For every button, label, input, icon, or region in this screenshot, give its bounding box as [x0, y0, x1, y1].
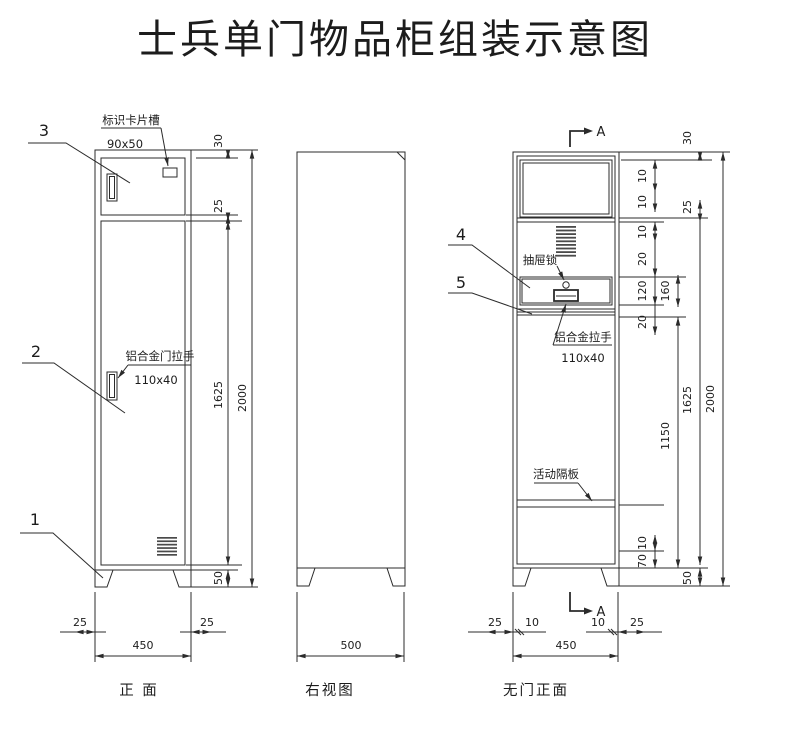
dim-label: 2000	[236, 384, 249, 412]
dim-label: 10	[636, 536, 649, 550]
dim-label: 10	[636, 169, 649, 183]
view-side: 500 右视图	[297, 152, 405, 699]
front-left-foot	[95, 570, 113, 587]
part-number-5: 5	[456, 273, 466, 292]
dim-label: 20	[636, 315, 649, 329]
page-title: 士兵单门物品柜组装示意图	[137, 17, 653, 63]
dim-label: 30	[212, 134, 225, 148]
dim-label: 25	[488, 616, 502, 629]
leader-arrow	[578, 483, 592, 501]
dim-label: 2000	[704, 385, 717, 413]
nodoor-right-foot	[601, 568, 619, 586]
dim-label: 10	[636, 195, 649, 209]
drawer-handle-label: 铝合金拉手	[554, 330, 612, 344]
view-label-side: 右视图	[305, 682, 355, 699]
front-right-dimensions: 30 25 1625 50 2000	[186, 134, 258, 587]
dim-label: 10	[636, 225, 649, 239]
dim-label: 10	[525, 616, 539, 629]
section-letter: A	[597, 125, 606, 140]
dim-label: 120	[636, 281, 649, 302]
drawer-handle-size: 110x40	[561, 351, 604, 365]
dim-label: 20	[636, 252, 649, 266]
dim-label: 450	[133, 639, 154, 652]
drawing-sheet: 士兵单门物品柜组装示意图 3 标识卡	[0, 0, 790, 736]
callout-part-3: 3	[28, 121, 130, 183]
front-top-door	[101, 158, 185, 215]
view-label-front: 正 面	[119, 683, 159, 699]
dim-label: 25	[681, 200, 694, 214]
view-nodoor: A A 4 5 抽屉锁 铝合金拉手 110x40 活动隔板	[448, 125, 730, 699]
nodoor-top-opening	[520, 160, 612, 217]
callout-drawer-lock: 抽屉锁	[523, 253, 564, 280]
callout-shelf: 活动隔板	[533, 467, 592, 501]
side-cabinet-outline	[297, 152, 405, 568]
side-bottom-dimensions: 500	[297, 592, 404, 662]
dim-label: 30	[681, 131, 694, 145]
view-label-nodoor: 无门正面	[503, 682, 569, 699]
callout-part-1: 1	[20, 510, 103, 578]
front-top-door-handle	[107, 174, 117, 201]
front-right-foot	[173, 570, 191, 587]
part-number-4: 4	[456, 225, 466, 244]
dim-label: 10	[591, 616, 605, 629]
nodoor-bottom-dimensions: 25 10 10 25 450	[468, 592, 662, 662]
dim-label: 25	[200, 616, 214, 629]
dim-label: 25	[73, 616, 87, 629]
section-arrow-icon	[584, 608, 593, 615]
part-number-2: 2	[31, 342, 41, 361]
front-main-door	[101, 221, 185, 565]
dim-label: 50	[212, 571, 225, 585]
part-number-3: 3	[39, 121, 49, 140]
drawer-handle	[554, 290, 578, 301]
section-mark-top: A	[570, 125, 606, 147]
door-handle-size: 110x40	[134, 373, 177, 387]
front-bottom-dimensions: 25 25 450	[60, 592, 226, 662]
callout-door-handle: 铝合金门拉手 110x40	[118, 349, 195, 387]
card-slot-size: 90x50	[107, 137, 143, 151]
dim-label: 450	[556, 639, 577, 652]
shelf-label: 活动隔板	[533, 467, 579, 481]
drawer-lock-label: 抽屉锁	[523, 253, 558, 267]
dim-label: 160	[659, 281, 672, 302]
door-handle-label: 铝合金门拉手	[126, 349, 195, 363]
section-arrow-icon	[584, 128, 593, 135]
front-card-slot	[163, 168, 177, 177]
dim-label: 1150	[659, 422, 672, 450]
leader-arrow	[161, 128, 168, 166]
callout-part-5: 5	[448, 273, 532, 314]
assembly-drawing: 士兵单门物品柜组装示意图 3 标识卡	[0, 0, 790, 736]
dim-label: 1625	[681, 386, 694, 414]
front-vent-slats	[157, 537, 177, 556]
drawer-lock	[563, 282, 569, 288]
front-main-door-handle	[107, 372, 117, 400]
nodoor-left-foot	[513, 568, 531, 586]
nodoor-vent-slats	[556, 226, 576, 257]
dim-label: 25	[630, 616, 644, 629]
nodoor-top-shelf	[517, 218, 615, 222]
leader-line	[448, 293, 532, 314]
dim-label: 500	[341, 639, 362, 652]
nodoor-movable-shelf	[517, 500, 615, 507]
dim-label: 70	[636, 554, 649, 568]
side-left-foot	[297, 568, 315, 586]
leader-arrow	[118, 365, 128, 378]
card-slot-label: 标识卡片槽	[102, 113, 160, 127]
part-number-1: 1	[30, 510, 40, 529]
nodoor-right-dimensions: 10 10 10 20 120 20 10 70 160 1150 30 25	[619, 131, 730, 586]
side-corner-chamfer	[397, 152, 405, 160]
dim-label: 50	[681, 571, 694, 585]
leader-arrow	[557, 266, 564, 280]
dim-label: 25	[212, 199, 225, 213]
dim-label: 1625	[212, 381, 225, 409]
callout-drawer-handle: 铝合金拉手 110x40	[553, 304, 612, 365]
leader-line	[20, 533, 103, 578]
view-front: 3 标识卡片槽 90x50 2 铝合金门拉手 110x40 1 30	[20, 113, 258, 699]
side-right-foot	[387, 568, 405, 586]
